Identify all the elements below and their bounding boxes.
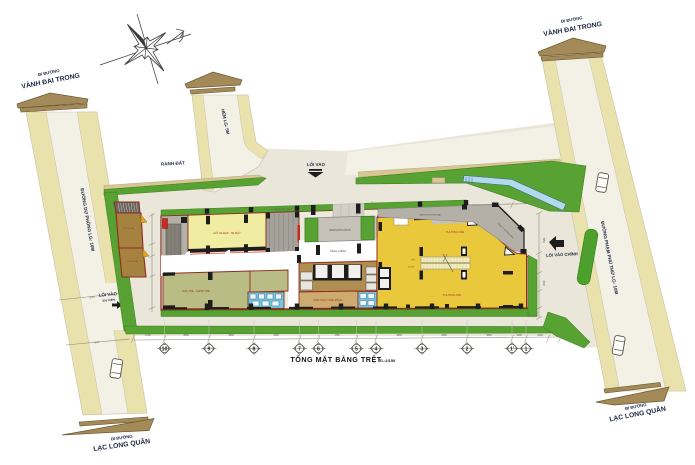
svg-text:SẢNH THƯƠNG MẠI: SẢNH THƯƠNG MẠI <box>419 214 440 217</box>
svg-text:LỐI VÀO: LỐI VÀO <box>307 162 326 167</box>
svg-text:THƯƠNG MẠI: THƯƠNG MẠI <box>443 293 462 297</box>
svg-text:SINH HOẠT CỘNG ĐỒNG: SINH HOẠT CỘNG ĐỒNG <box>314 299 343 302</box>
svg-text:XUỐNG: XUỐNG <box>408 266 415 269</box>
svg-text:9: 9 <box>208 347 211 353</box>
svg-text:4: 4 <box>375 347 378 353</box>
svg-text:LỐI XE XUỐNG HẦM: LỐI XE XUỐNG HẦM <box>271 208 291 211</box>
svg-text:2-4m: 2-4m <box>145 334 150 337</box>
svg-text:1': 1' <box>510 347 514 353</box>
svg-text:KỸ THUẬT: KỸ THUẬT <box>124 227 135 230</box>
svg-text:1400: 1400 <box>516 334 522 337</box>
svg-text:2: 2 <box>466 347 469 353</box>
svg-text:2400: 2400 <box>537 334 543 337</box>
svg-text:7850: 7850 <box>542 237 545 243</box>
svg-text:6: 6 <box>317 347 320 353</box>
svg-text:TL:1/150: TL:1/150 <box>379 358 396 363</box>
svg-text:4600: 4600 <box>396 334 402 337</box>
svg-text:7: 7 <box>298 347 301 353</box>
svg-text:8: 8 <box>253 347 256 353</box>
svg-text:4500: 4500 <box>228 334 234 337</box>
svg-text:KỸ THUẬT: KỸ THUẬT <box>128 260 139 263</box>
svg-text:TỔNG MẶT BẰNG TRỆT: TỔNG MẶT BẰNG TRỆT <box>290 355 381 364</box>
svg-text:4500: 4500 <box>183 334 189 337</box>
svg-text:SẢNH ĐÓN KHÁCH: SẢNH ĐÓN KHÁCH <box>329 229 351 232</box>
svg-text:3750: 3750 <box>334 334 340 337</box>
svg-text:4500: 4500 <box>542 280 545 286</box>
svg-text:10: 10 <box>162 347 168 353</box>
svg-text:3: 3 <box>421 347 424 353</box>
svg-text:4600: 4600 <box>273 334 279 337</box>
svg-text:5: 5 <box>355 347 358 353</box>
svg-text:4500: 4500 <box>486 334 492 337</box>
svg-text:1: 1 <box>525 347 528 353</box>
svg-text:THƯƠNG MẠI: THƯƠNG MẠI <box>446 230 465 234</box>
svg-text:4500: 4500 <box>441 334 447 337</box>
